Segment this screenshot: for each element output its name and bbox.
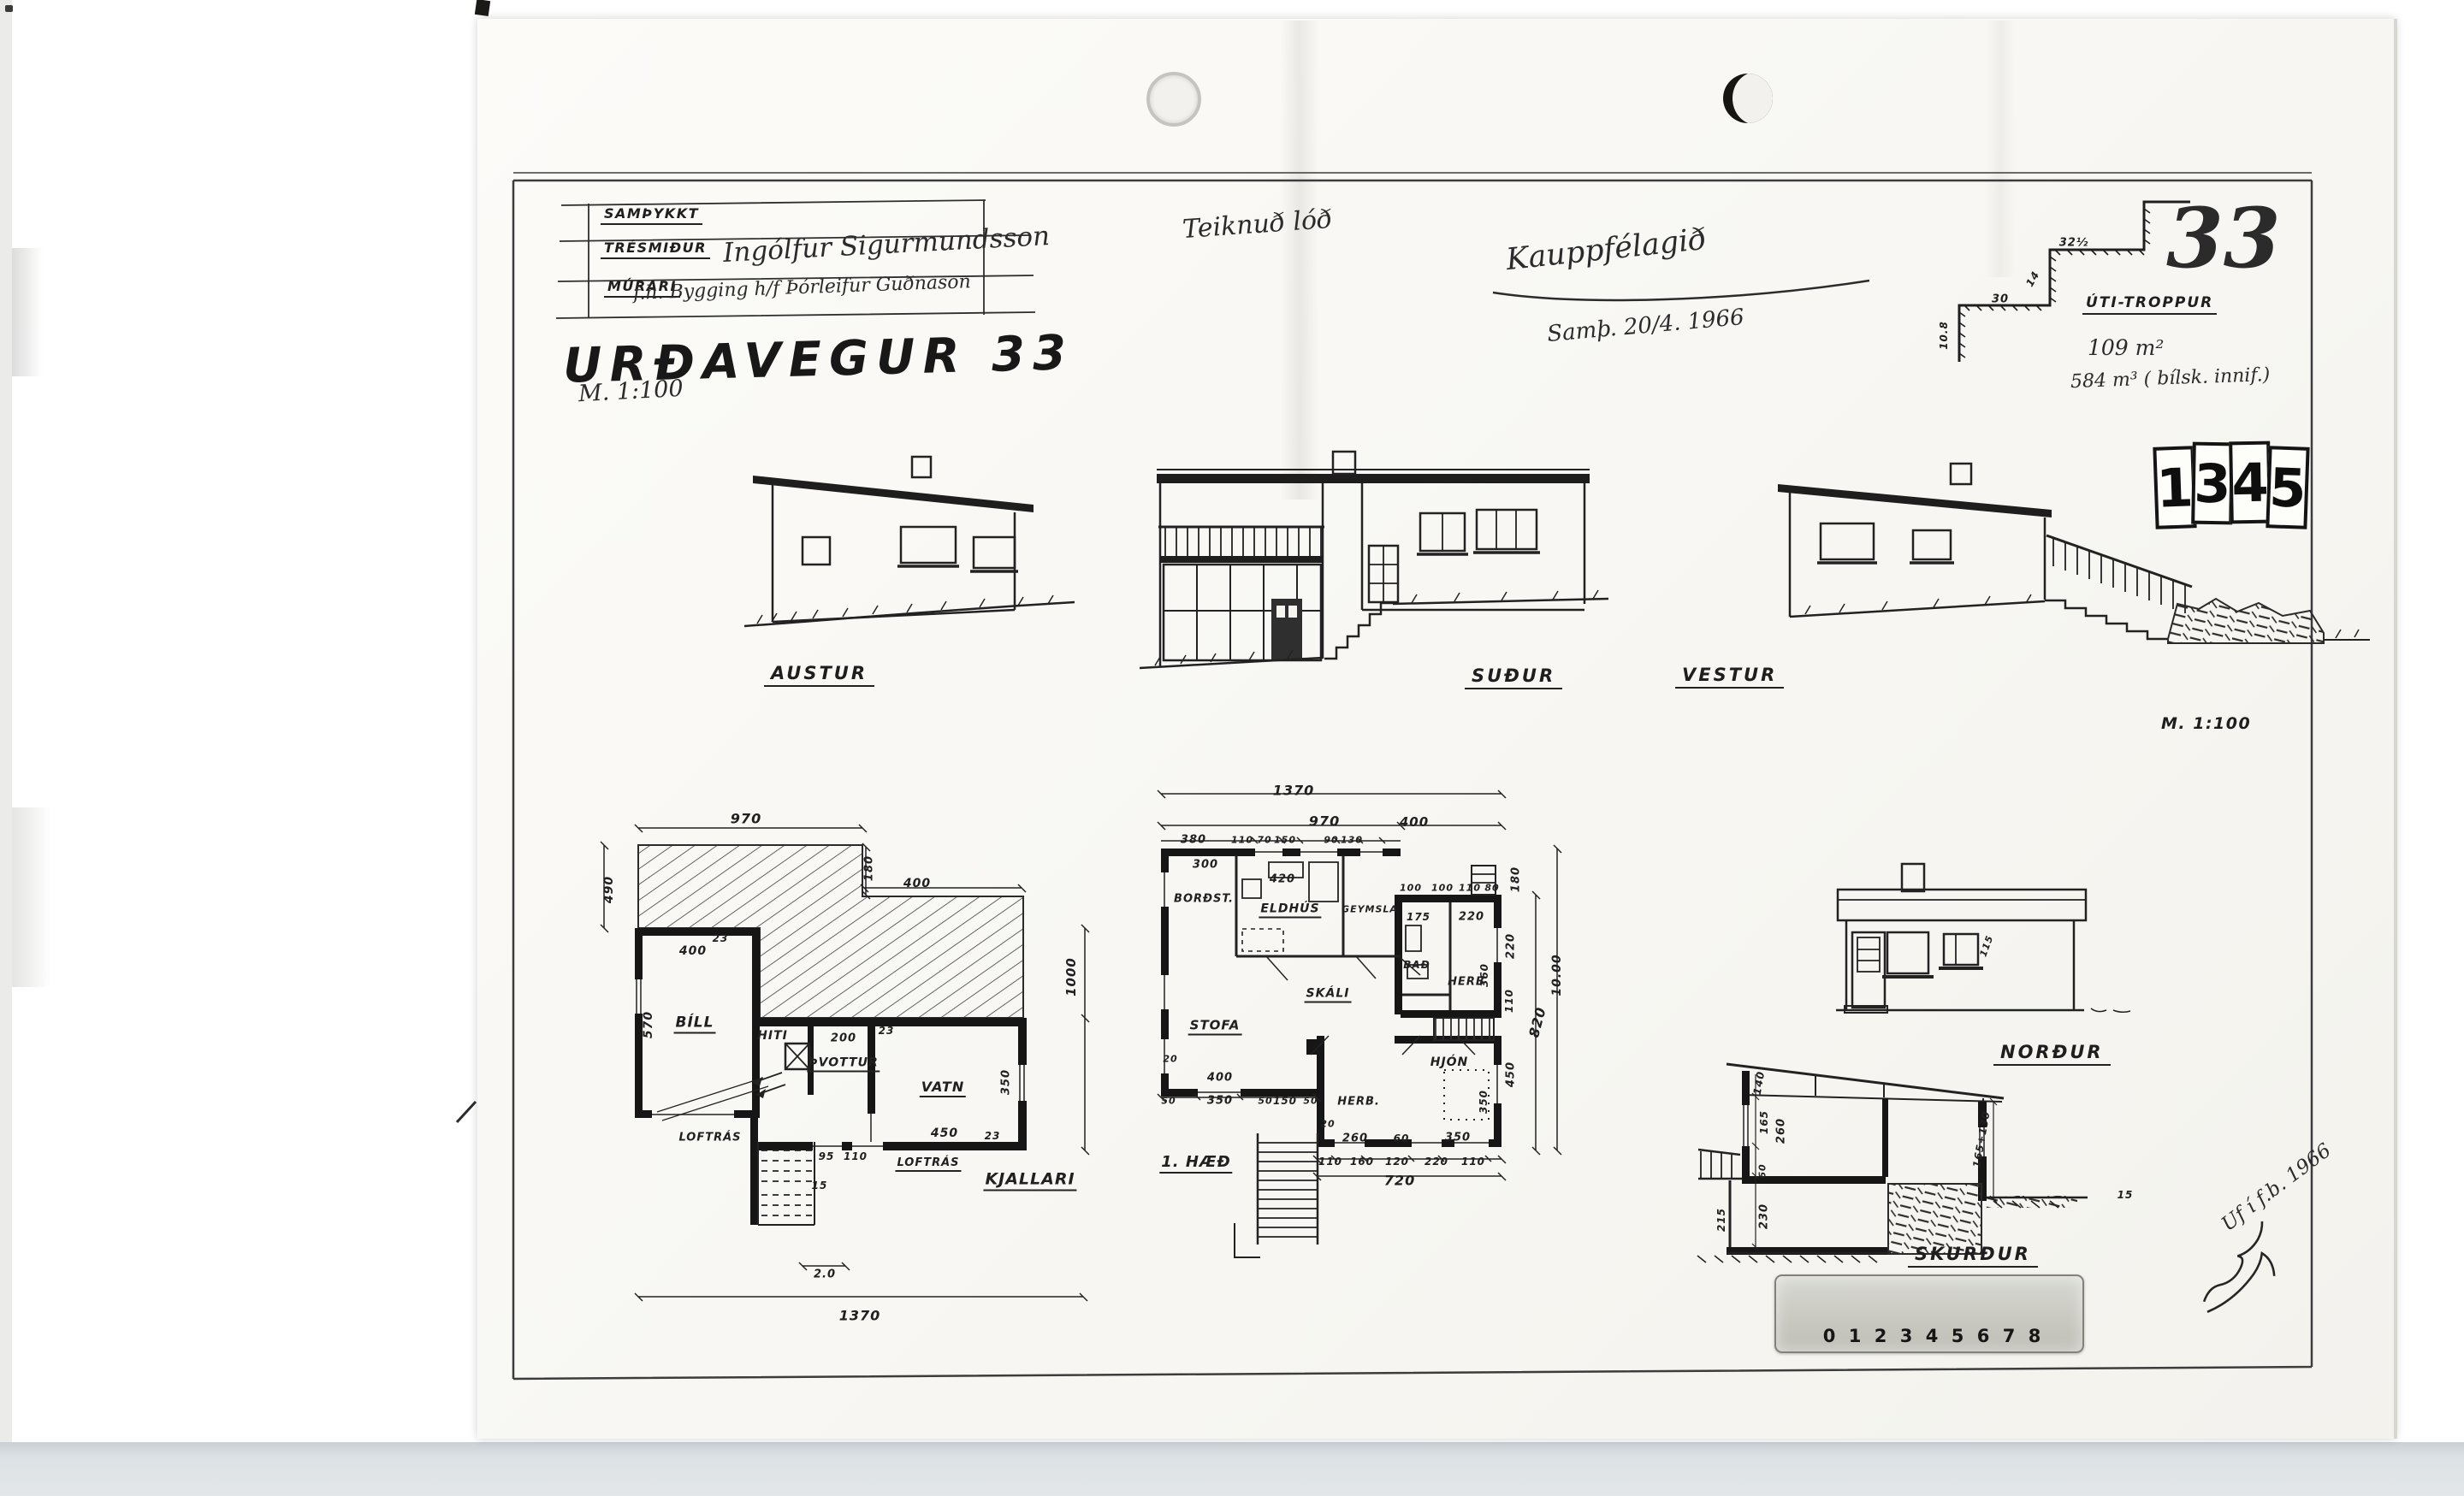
stamp-digit: 3 — [2191, 442, 2234, 525]
label-vestur: VESTUR — [1675, 665, 1784, 689]
scanned-blueprint-page: SAMÞYKKT TRÉSMIÐUR MÚRARI Ingólfur Sigur… — [0, 0, 2464, 1496]
label-nordur: NORÐUR — [1993, 1042, 2111, 1066]
label-austur: AUSTUR — [764, 663, 874, 687]
paper-crease — [1985, 21, 2016, 277]
label-skurdur: SKURÐUR — [1908, 1244, 2038, 1268]
hole-punch-left — [1146, 72, 1201, 127]
hole-punch-highlight — [1732, 74, 1773, 123]
paper-corner-mark — [475, 0, 490, 16]
scan-speck — [5, 5, 13, 12]
area-note: 109 m² — [2088, 335, 2164, 360]
stamp-digit: 4 — [2229, 441, 2271, 524]
sheet-number: 33 — [2166, 190, 2281, 287]
scale-bar — [1774, 1274, 2084, 1353]
paper-right-edge — [2394, 19, 2397, 1439]
scanner-bottom-band — [0, 1442, 2464, 1496]
scale-note-right: M. 1:100 — [2161, 714, 2251, 733]
approval-row-2: TRÉSMIÐUR — [601, 239, 710, 259]
paper-crease — [1280, 21, 1319, 500]
scan-edge-band — [0, 0, 12, 1442]
number-stamp: 1 3 4 5 — [2154, 440, 2325, 534]
stray-pen-mark — [457, 1102, 476, 1122]
step-detail-label: ÚTI-TROPPUR — [2082, 294, 2217, 315]
stamp-digit: 5 — [2266, 446, 2309, 529]
hole-punch-right — [1723, 74, 1773, 123]
approval-row-1: SAMÞYKKT — [601, 205, 702, 225]
stamp-digit: 1 — [2153, 446, 2196, 529]
paper-sheet — [477, 19, 2396, 1439]
title-scale-note: M. 1:100 — [577, 375, 684, 407]
label-sudur: SUÐUR — [1465, 665, 1562, 689]
